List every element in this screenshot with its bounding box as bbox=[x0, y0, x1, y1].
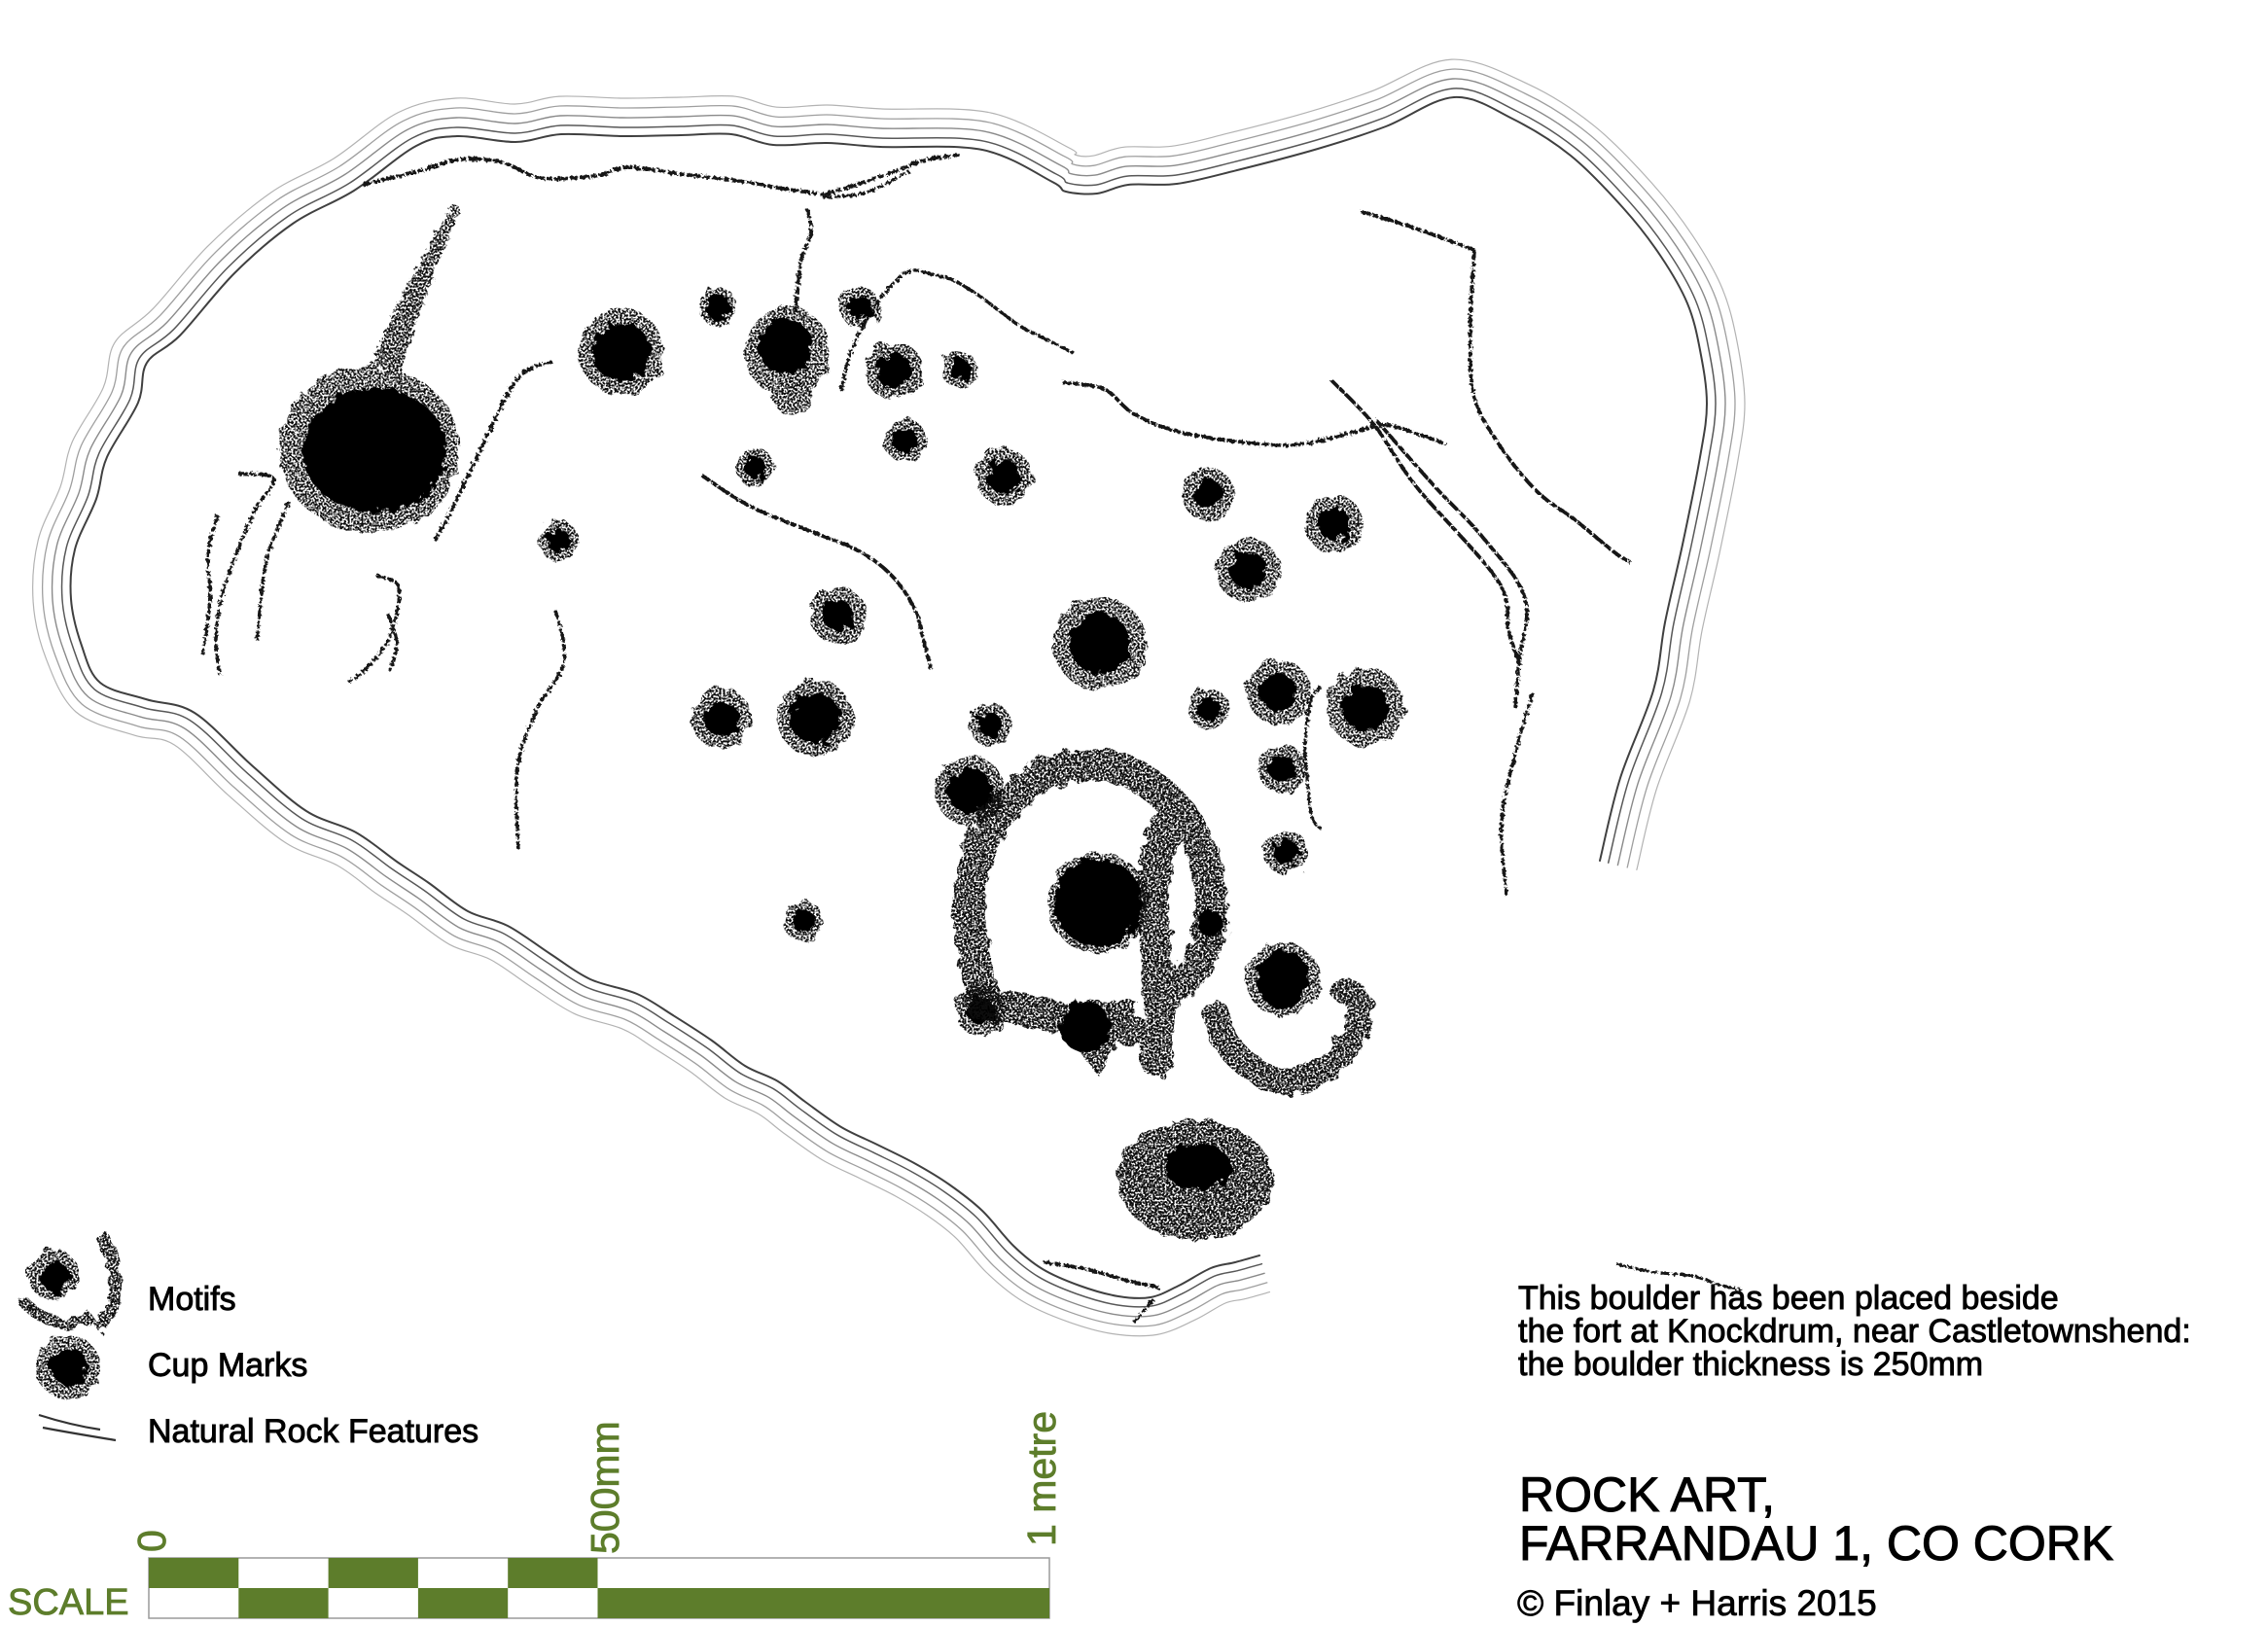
svg-text:Motifs: Motifs bbox=[148, 1281, 236, 1318]
svg-text:FARRANDAU 1, CO CORK: FARRANDAU 1, CO CORK bbox=[1519, 1516, 2113, 1571]
svg-text:0: 0 bbox=[129, 1530, 174, 1552]
svg-text:Cup Marks: Cup Marks bbox=[148, 1347, 307, 1384]
svg-text:the fort at Knockdrum, near Ca: the fort at Knockdrum, near Castletownsh… bbox=[1518, 1313, 2191, 1350]
svg-text:the boulder thickness is 250mm: the boulder thickness is 250mm bbox=[1518, 1346, 1983, 1383]
svg-text:This boulder has been placed b: This boulder has been placed beside bbox=[1518, 1280, 2059, 1317]
svg-text:Natural Rock Features: Natural Rock Features bbox=[148, 1413, 478, 1450]
svg-text:500mm: 500mm bbox=[583, 1421, 627, 1554]
svg-text:© Finlay + Harris 2015: © Finlay + Harris 2015 bbox=[1517, 1583, 1877, 1623]
svg-text:1 metre: 1 metre bbox=[1019, 1411, 1064, 1546]
svg-text:ROCK ART,: ROCK ART, bbox=[1519, 1467, 1775, 1522]
svg-text:SCALE: SCALE bbox=[8, 1582, 129, 1623]
